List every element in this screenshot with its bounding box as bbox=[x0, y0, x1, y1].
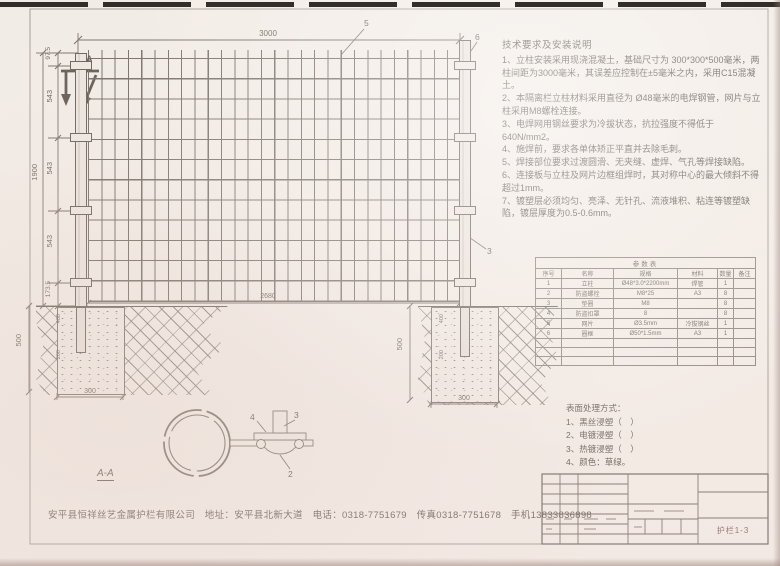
note-item: 6、连接板与立柱及网片边框组焊时，其对称中心的最大倾斜不得超过1mm。 bbox=[502, 169, 764, 195]
right-post-embedded bbox=[460, 307, 470, 357]
parts-col-header: 备注 bbox=[734, 269, 756, 279]
dim-seg-3: 543 bbox=[46, 235, 54, 248]
parts-row: 6圈框Ø50*1.5mmA31 bbox=[536, 329, 756, 339]
parts-table-title: 参数表 bbox=[536, 258, 756, 269]
parts-col-header: 材料 bbox=[678, 269, 718, 279]
dim-top-span: 3000 bbox=[238, 30, 298, 38]
parts-row bbox=[536, 348, 756, 357]
dim-foundation-width-right: 300 bbox=[434, 395, 494, 402]
dim-post-embed-right: 400 bbox=[440, 314, 446, 323]
dim-seg-2: 543 bbox=[46, 162, 54, 175]
surface-item: 2、电镀浸塑（ ） bbox=[566, 429, 716, 443]
callout-right-post-top: 6 bbox=[475, 32, 480, 42]
post-clamp bbox=[454, 278, 476, 287]
callout-detail-clamp: 2 bbox=[288, 469, 293, 479]
parts-col-header: 名称 bbox=[562, 269, 614, 279]
scan-edge-right bbox=[773, 0, 780, 566]
note-item: 7、镀塑层必须均匀、亮泽、无针孔、流液堆积、粘连等镀塑缺陷，镀层厚度为0.5-0… bbox=[502, 195, 764, 221]
parts-row bbox=[536, 339, 756, 348]
post-clamp bbox=[70, 278, 92, 287]
parts-col-header: 数量 bbox=[718, 269, 734, 279]
surface-title: 表面处理方式： bbox=[566, 402, 716, 416]
parts-row: 5网片Ø3.5mm冷拔钢丝1 bbox=[536, 319, 756, 329]
notes-title: 技术要求及安装说明 bbox=[502, 40, 764, 53]
parts-table-body: 1立柱Ø48*3.0*2200mm焊管12防盗螺栓M8*25A383垫圈M884… bbox=[536, 279, 756, 366]
dim-seg-1: 543 bbox=[46, 90, 54, 103]
dim-overall-height: 1900 bbox=[31, 164, 39, 181]
note-item: 5、焊接部位要求过渡圆滑、无夹缝、虚焊、气孔等焊接缺陷。 bbox=[502, 156, 764, 169]
surface-treatment: 表面处理方式： 1、黑丝浸塑（ ） 2、电镀浸塑（ ） 3、热镀浸塑（ ） 4、… bbox=[566, 402, 716, 470]
section-label-aa: A-A bbox=[97, 468, 114, 481]
dim-mesh-span: 2680 bbox=[238, 293, 298, 300]
note-item: 3、电焊网用钢丝要求为冷拔状态，抗拉强度不得低于640N/mm2。 bbox=[502, 118, 764, 144]
note-item: 2、本隔离栏立柱材料采用直径为 Ø48毫米的电焊钢管，网片与立柱采用M8螺栓连接… bbox=[502, 92, 764, 118]
mesh-wire-tips bbox=[88, 50, 460, 58]
post-clamp bbox=[454, 133, 476, 142]
post-clamp bbox=[70, 206, 92, 215]
post-clamp bbox=[454, 206, 476, 215]
dim-foundation-depth-left: 500 bbox=[15, 334, 23, 347]
callout-detail-plate: 4 bbox=[250, 412, 255, 422]
parts-row bbox=[536, 357, 756, 366]
callout-mesh: 5 bbox=[364, 18, 369, 28]
parts-row: 1立柱Ø48*3.0*2200mm焊管1 bbox=[536, 279, 756, 289]
welded-mesh-panel bbox=[88, 58, 460, 302]
dim-footing-below-left: 200 bbox=[57, 350, 63, 359]
concrete-footing-left bbox=[57, 307, 125, 395]
surface-item: 1、黑丝浸塑（ ） bbox=[566, 416, 716, 430]
parts-table: 参数表 序号名称规格材料数量备注 1立柱Ø48*3.0*2200mm焊管12防盗… bbox=[535, 257, 756, 366]
callout-right-post: 3 bbox=[487, 246, 492, 256]
dim-seg-4: 173.5 bbox=[46, 281, 53, 297]
left-post-embedded bbox=[76, 307, 86, 353]
technical-notes: 技术要求及安装说明 1、立柱安装采用现浇混凝土，基础尺寸为 300*300*50… bbox=[502, 40, 764, 220]
dim-foundation-depth-right: 500 bbox=[396, 338, 404, 351]
callout-detail-bolt: 3 bbox=[294, 410, 299, 420]
scanned-technical-drawing-sheet: 3000 2680 97.5 543 543 543 173.5 1900 50… bbox=[0, 0, 780, 566]
parts-col-header: 规格 bbox=[614, 269, 678, 279]
company-footer: 安平县恒祥丝艺金属护栏有限公司 地址：安平县北新大道 电话：0318-77516… bbox=[48, 507, 592, 521]
parts-row: 4防盗扣罩88 bbox=[536, 309, 756, 319]
note-item: 4、施焊前，要求各单体矫正平直并去除毛刺。 bbox=[502, 143, 764, 156]
parts-table-head: 序号名称规格材料数量备注 bbox=[536, 269, 756, 279]
parts-row: 2防盗螺栓M8*25A38 bbox=[536, 289, 756, 299]
surface-item: 4、颜色：草绿。 bbox=[566, 456, 716, 470]
dim-foundation-width-left: 300 bbox=[60, 388, 120, 395]
note-item: 1、立柱安装采用现浇混凝土，基础尺寸为 300*300*500毫米，两柱间距为3… bbox=[502, 54, 764, 92]
parts-row: 3垫圈M88 bbox=[536, 299, 756, 309]
dim-post-embed-left: 400 bbox=[57, 314, 63, 323]
scan-edge-bottom bbox=[0, 558, 780, 566]
post-clamp bbox=[70, 133, 92, 142]
dim-seg-0: 97.5 bbox=[46, 47, 53, 60]
surface-item: 3、热镀浸塑（ ） bbox=[566, 443, 716, 457]
parts-col-header: 序号 bbox=[536, 269, 562, 279]
scan-edge-top bbox=[0, 2, 780, 7]
section-mark-a: A bbox=[86, 54, 93, 64]
dim-footing-below-right: 200 bbox=[440, 350, 446, 359]
post-clamp bbox=[454, 61, 476, 70]
drawing-number: 护栏1-3 bbox=[698, 518, 768, 544]
